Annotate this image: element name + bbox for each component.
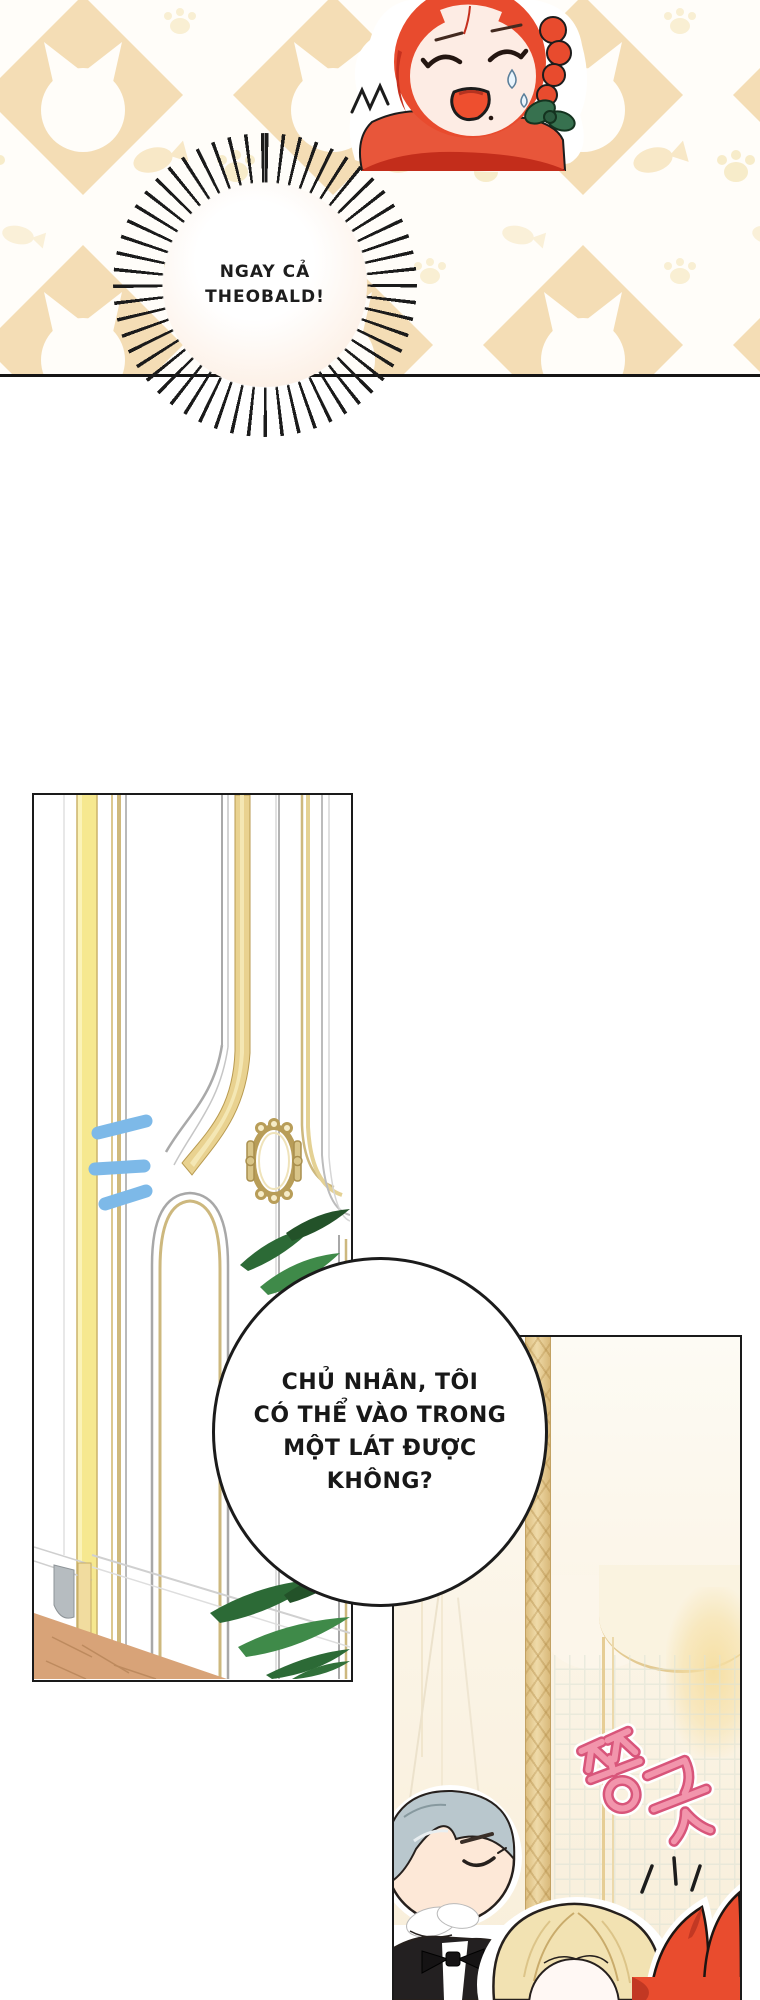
burst-text-line1: NGAY CẢ	[220, 260, 311, 285]
girl-character	[340, 0, 590, 172]
emphasis-ticks	[642, 1858, 700, 1892]
door-handle	[246, 1120, 302, 1203]
speech-text-line1: CHỦ NHÂN, TÔI	[282, 1366, 479, 1399]
beauty-mark	[489, 116, 494, 121]
main-speech-bubble: CHỦ NHÂN, TÔI CÓ THỂ VÀO TRONG MỘT LÁT Đ…	[212, 1257, 548, 1607]
webtoon-page: NGAY CẢ THEOBALD!	[0, 0, 760, 2000]
girl-mouth	[452, 89, 490, 120]
burst-speech-bubble: NGAY CẢ THEOBALD!	[163, 183, 367, 387]
sfx-strokes	[580, 1716, 717, 1858]
burst-text-line2: THEOBALD!	[205, 285, 325, 310]
speech-text-line2: CÓ THỂ VÀO TRONG	[254, 1399, 507, 1432]
speech-text-line4: KHÔNG?	[327, 1465, 433, 1498]
speech-text-line3: MỘT LÁT ĐƯỢC	[283, 1432, 476, 1465]
